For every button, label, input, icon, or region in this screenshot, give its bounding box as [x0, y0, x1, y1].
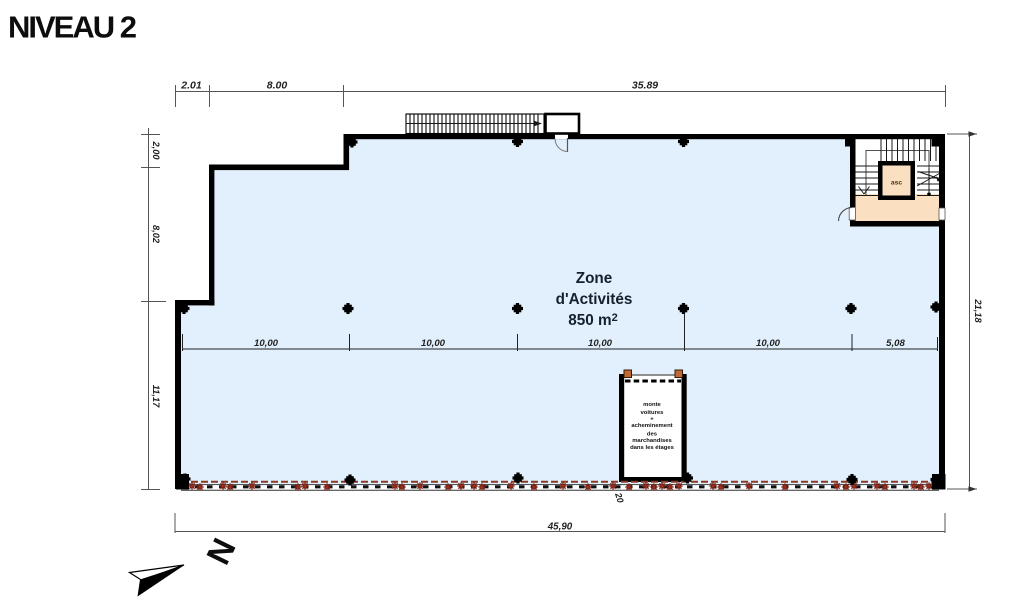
svg-text:2,00: 2,00: [151, 140, 161, 160]
svg-text:10,00: 10,00: [756, 338, 781, 349]
svg-text:45,90: 45,90: [547, 522, 573, 533]
svg-text:2.01: 2.01: [180, 80, 202, 92]
svg-text:20: 20: [613, 491, 626, 505]
svg-text:monte: monte: [643, 402, 661, 408]
svg-text:21,18: 21,18: [973, 298, 983, 323]
svg-text:d'Activités: d'Activités: [556, 291, 633, 308]
svg-text:acheminement: acheminement: [631, 423, 672, 429]
svg-text:asc: asc: [891, 180, 903, 187]
svg-text:850 m2: 850 m2: [568, 312, 618, 329]
svg-text:10,00: 10,00: [421, 338, 446, 349]
svg-text:+: +: [650, 417, 654, 423]
svg-text:11,17: 11,17: [151, 385, 161, 408]
svg-text:10,00: 10,00: [254, 338, 279, 349]
svg-text:marchandises: marchandises: [632, 438, 672, 444]
svg-text:8,02: 8,02: [151, 225, 161, 244]
svg-text:10,00: 10,00: [588, 338, 613, 349]
svg-text:NIVEAU 2: NIVEAU 2: [8, 10, 136, 45]
svg-text:dans les étages: dans les étages: [630, 445, 675, 451]
svg-text:5,08: 5,08: [886, 338, 905, 349]
svg-text:voitures: voitures: [641, 410, 665, 416]
svg-text:Zone: Zone: [576, 270, 613, 287]
svg-text:8.00: 8.00: [267, 80, 288, 92]
svg-text:35.89: 35.89: [632, 80, 658, 92]
svg-text:N: N: [199, 532, 243, 570]
svg-text:des: des: [647, 432, 658, 438]
